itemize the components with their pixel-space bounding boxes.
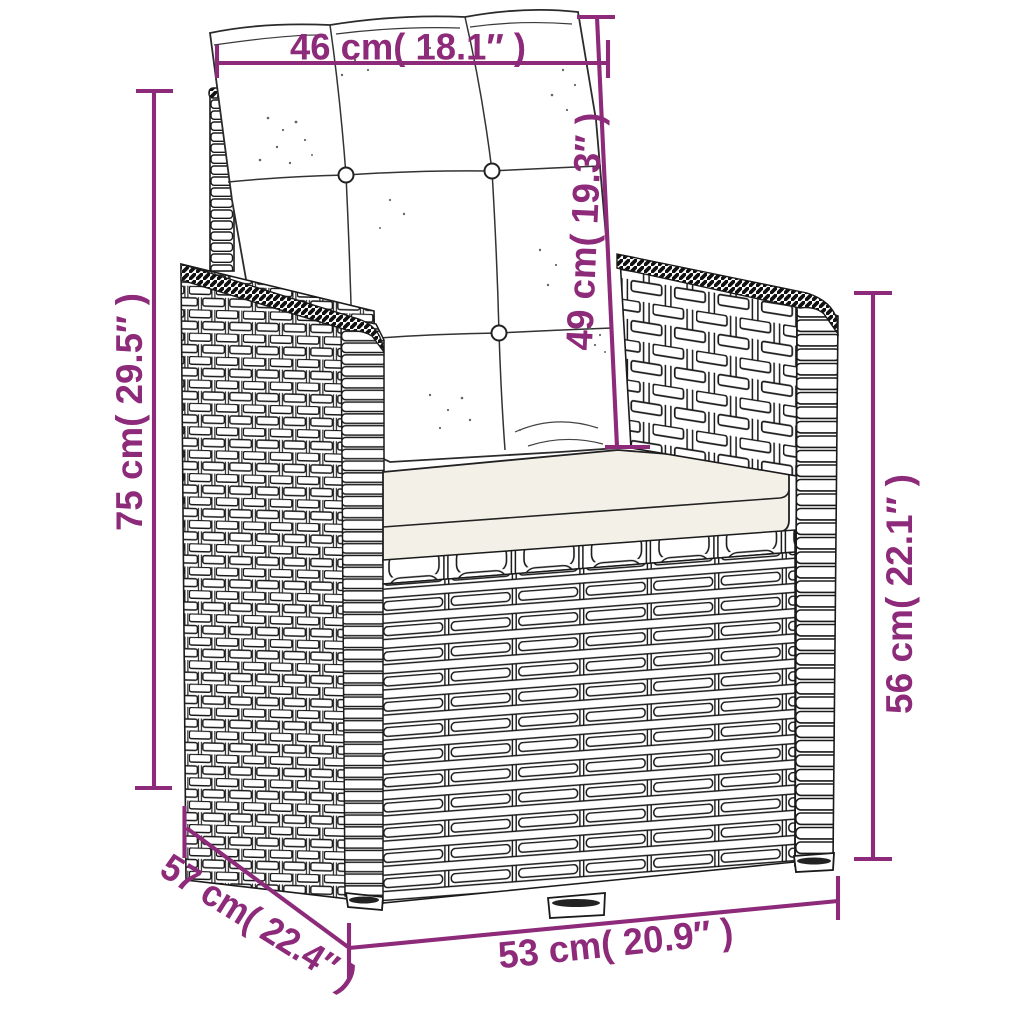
svg-text:46 cm( 18.1″ ): 46 cm( 18.1″ ) [290, 26, 526, 68]
svg-text:75 cm( 29.5″ ): 75 cm( 29.5″ ) [108, 293, 150, 531]
svg-text:56 cm( 22.1″ ): 56 cm( 22.1″ ) [878, 474, 920, 714]
